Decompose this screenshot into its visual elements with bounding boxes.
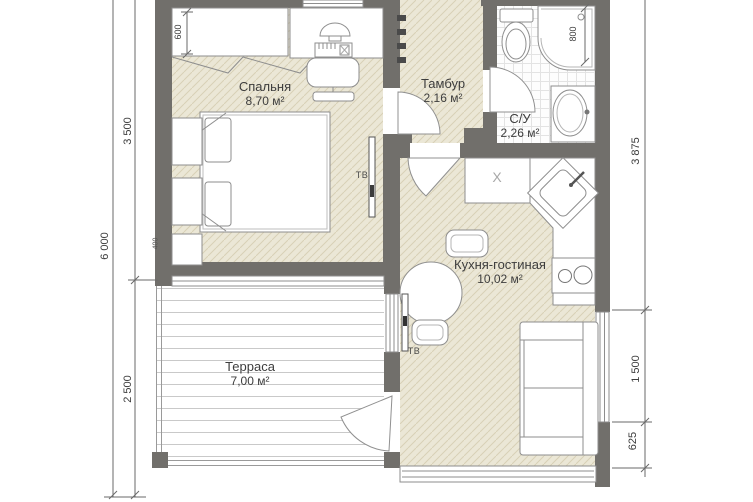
bathroom-area: 2,26 м² <box>470 126 570 140</box>
top-wall-left <box>155 0 305 8</box>
terrace-kitchen-wall <box>384 352 400 392</box>
kitchen-top-wall-right <box>460 143 610 158</box>
bedroom-terrace-glazing <box>172 276 384 286</box>
right-wall-upper <box>595 0 610 312</box>
toilet-tank <box>500 9 533 22</box>
kitchen-label: Кухня-гостиная 10,02 м² <box>438 257 562 286</box>
dim-wardrobe-depth: 600 <box>173 12 183 52</box>
pillow-bottom <box>205 182 231 226</box>
dim-left-upper: 3 500 <box>122 101 134 161</box>
bottom-window <box>400 466 596 482</box>
shower-drain <box>578 14 584 20</box>
dim-right-upper: 3 875 <box>630 121 642 181</box>
wardrobe <box>172 8 288 56</box>
terrace-label: Терраса 7,00 м² <box>200 359 300 388</box>
dining-chair-top <box>446 230 488 257</box>
dim-left-total: 6 000 <box>99 216 111 276</box>
dim-shower-width: 800 <box>568 14 578 54</box>
floor-plan-drawing <box>0 0 753 502</box>
terrace-post-bottom-left <box>152 452 168 468</box>
vestibule-label: Тамбур 2,16 м² <box>393 76 493 105</box>
tv-bedroom-label: ТВ <box>351 170 373 180</box>
nightstand-top <box>172 118 202 165</box>
tv-kitchen-label: ТВ <box>403 346 425 356</box>
desk-chair-back <box>313 92 354 101</box>
top-wall-right <box>481 0 595 6</box>
vestibule-area: 2,16 м² <box>393 91 493 105</box>
tv-kitchen-mount <box>403 316 407 326</box>
bedroom-area: 8,70 м² <box>215 94 315 108</box>
nightstand-bottom <box>172 178 202 225</box>
bedroom-name: Спальня <box>215 79 315 94</box>
bedroom-vestibule-wall-lower <box>383 134 400 276</box>
terrace-name: Терраса <box>200 359 300 374</box>
sink-faucet <box>585 110 590 115</box>
kitchen-area: 10,02 м² <box>438 272 562 286</box>
dim-right-lower: 625 <box>627 421 639 461</box>
bathroom-name: С/У <box>470 111 570 126</box>
dim-left-lower: 2 500 <box>122 359 134 419</box>
vestibule-bath-wall-upper <box>483 0 497 70</box>
bedside-shelf <box>172 234 202 265</box>
kitchen-name: Кухня-гостиная <box>438 257 562 272</box>
terrace-post-bottom-right <box>384 452 400 468</box>
desk-lamp-base <box>329 36 341 41</box>
kitchen-top-wall-left <box>400 143 410 158</box>
dim-right-middle: 1 500 <box>630 339 642 399</box>
dim-bedside-width: 400 <box>153 229 160 259</box>
bedroom-label: Спальня 8,70 м² <box>215 79 315 108</box>
pillow-top <box>205 118 231 162</box>
terrace-kitchen-window <box>386 294 398 352</box>
sofa <box>520 322 598 455</box>
tv-bedroom-mount <box>370 185 374 197</box>
cabinet-x-mark: X <box>487 169 507 185</box>
terrace-post-top-right <box>384 262 400 294</box>
vestibule-name: Тамбур <box>393 76 493 91</box>
floor-plan-page: Спальня 8,70 м² Тамбур 2,16 м² С/У 2,26 … <box>0 0 753 502</box>
terrace-area: 7,00 м² <box>200 374 300 388</box>
bathroom-label: С/У 2,26 м² <box>470 111 570 140</box>
